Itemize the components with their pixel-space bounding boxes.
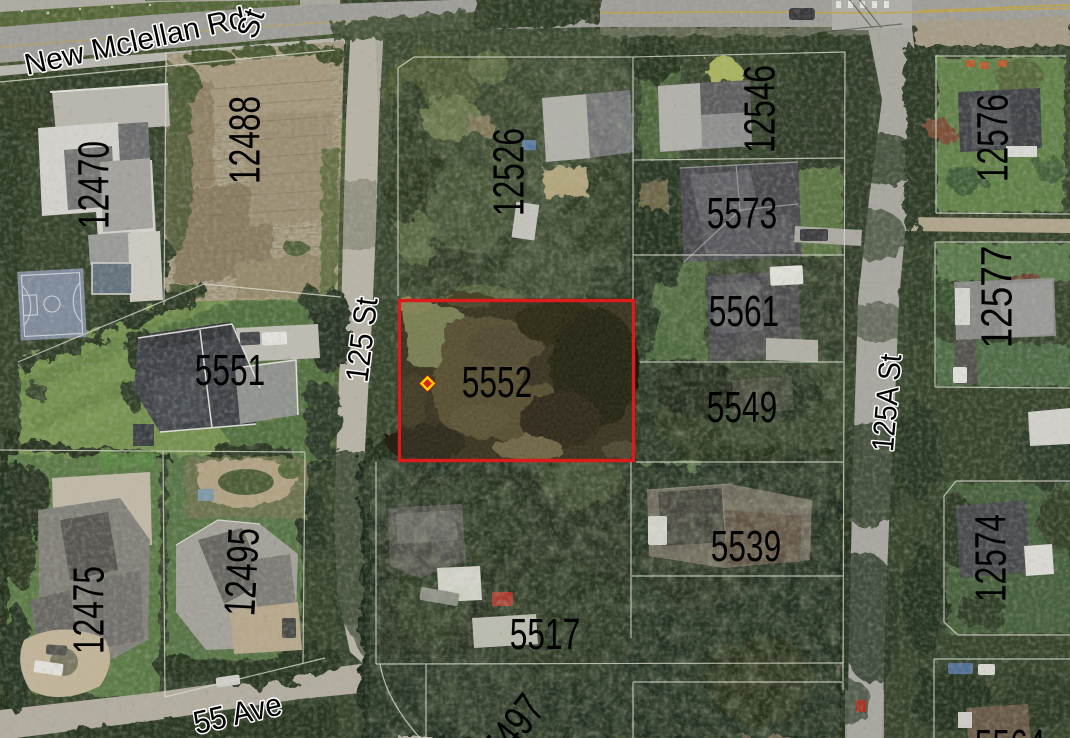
svg-text:12488: 12488 <box>221 96 270 184</box>
svg-text:12577: 12577 <box>972 246 1022 349</box>
svg-text:5549: 5549 <box>707 383 777 432</box>
svg-text:5564: 5564 <box>975 721 1045 738</box>
svg-text:12576: 12576 <box>969 94 1018 182</box>
svg-text:12546: 12546 <box>736 65 785 153</box>
svg-text:5517: 5517 <box>510 610 580 659</box>
svg-text:12475: 12475 <box>65 566 114 654</box>
svg-text:5561: 5561 <box>709 287 779 336</box>
svg-text:5551: 5551 <box>195 346 265 395</box>
svg-text:12526: 12526 <box>485 128 534 216</box>
svg-text:12574: 12574 <box>967 514 1016 602</box>
svg-text:5573: 5573 <box>707 189 777 238</box>
svg-text:12495: 12495 <box>215 527 269 618</box>
svg-text:12470: 12470 <box>70 141 119 229</box>
svg-text:5539: 5539 <box>711 522 781 571</box>
svg-text:5552: 5552 <box>462 358 532 407</box>
